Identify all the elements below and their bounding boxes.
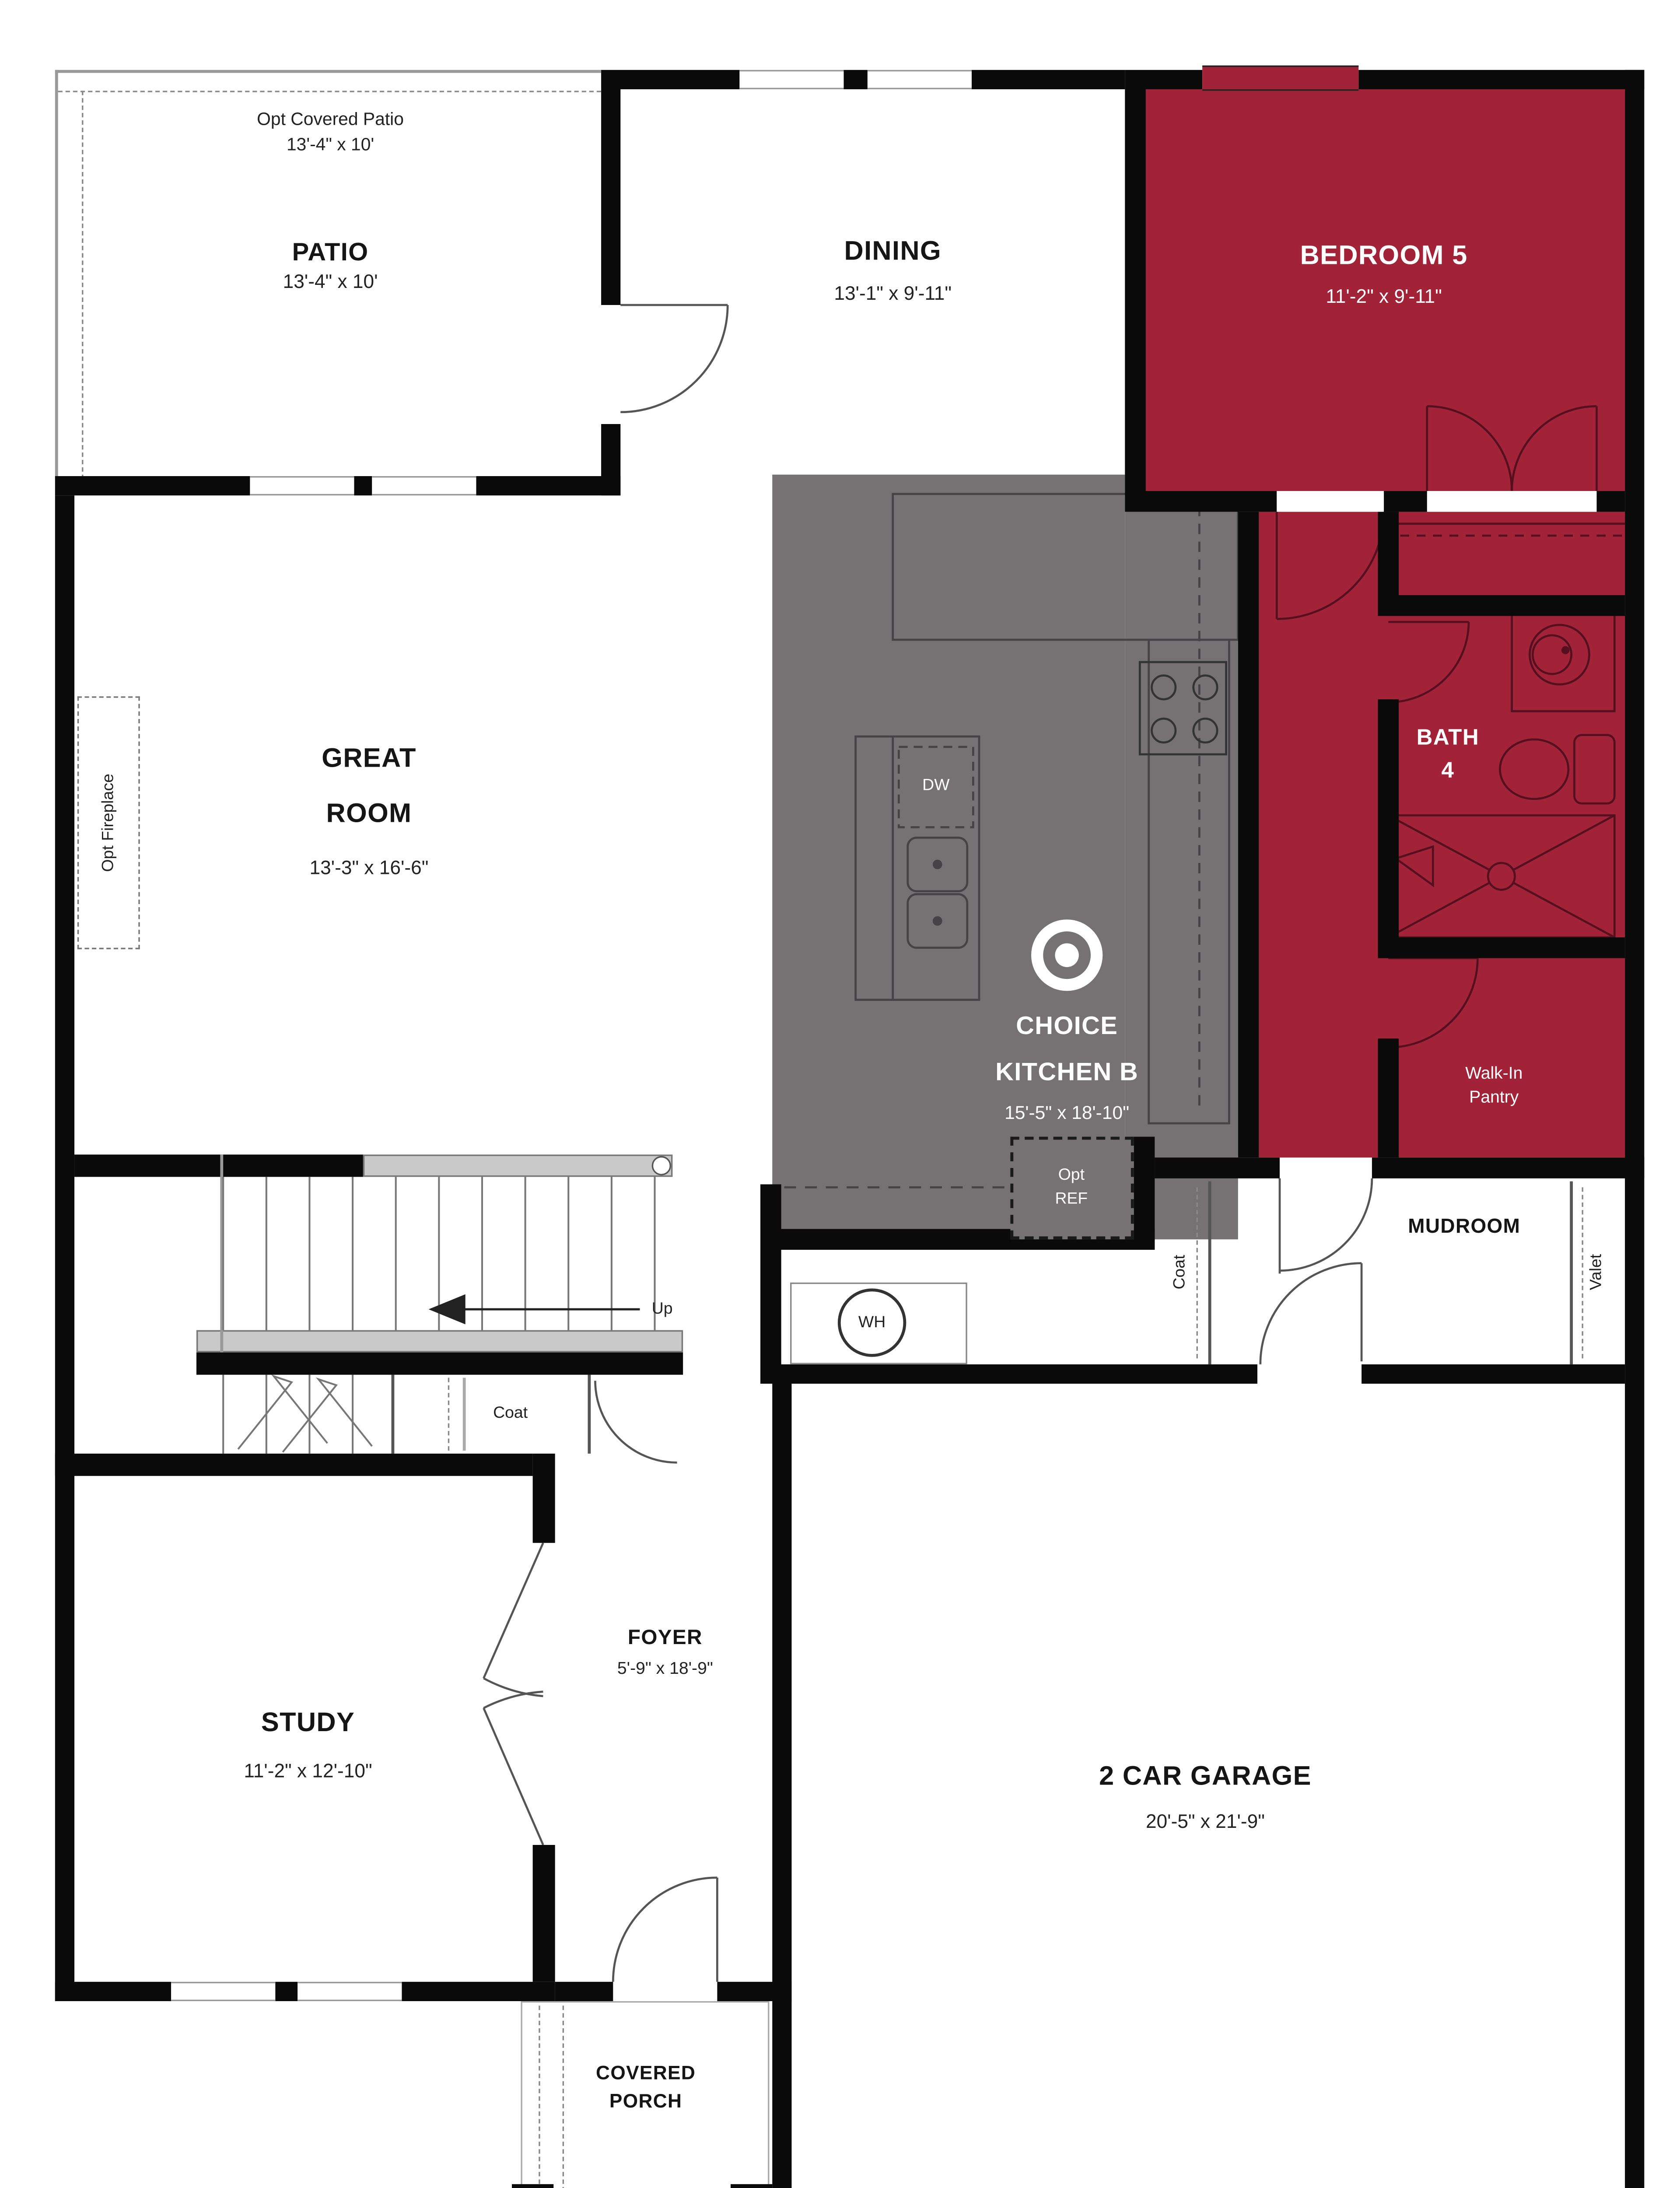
foyer-label: FOYER (628, 1625, 703, 1648)
dining-label: DINING (844, 236, 941, 267)
wall (196, 1353, 683, 1375)
bedroom5-dims: 11'-2" x 9'-11" (1326, 285, 1442, 307)
wall (1378, 595, 1625, 616)
window (372, 476, 476, 495)
wall (1384, 491, 1427, 512)
dining-dims: 13'-1" x 9'-11" (834, 282, 952, 304)
floorplan: Opt Fireplace Opt REF WH Opt Covered Pat… (0, 0, 1680, 2188)
wall (533, 1845, 555, 1982)
bedroom5-window (1202, 66, 1358, 91)
wall (275, 1982, 297, 2001)
stairs-coat-door (595, 1381, 677, 1462)
pantry-label: Walk-In (1465, 1065, 1522, 1083)
wall (55, 1454, 533, 1476)
bedroom5-door (1277, 512, 1384, 619)
opt-fireplace-label: Opt Fireplace (100, 774, 118, 872)
stair-break-line (283, 1379, 372, 1452)
garage-label: 2 CAR GARAGE (1099, 1761, 1312, 1792)
wall (1378, 1038, 1399, 1157)
porch-dashed-line (539, 2006, 540, 2188)
wall (1125, 491, 1277, 512)
bath-sink (1529, 625, 1589, 684)
cooktop (1140, 662, 1226, 754)
water-heater-icon: WH (838, 1288, 906, 1357)
porch-column (512, 2184, 553, 2188)
pantry-label: Pantry (1469, 1089, 1519, 1107)
vanity (1512, 604, 1615, 711)
wall (717, 1982, 791, 2001)
study-double-door (483, 1543, 543, 1845)
opt-covered-patio-dims: 13'-4" x 10' (287, 134, 374, 155)
plan-linework (0, 0, 1680, 2188)
stairs-up-arrow (431, 1296, 640, 1322)
stairs-coat-label: Coat (493, 1405, 528, 1423)
wall (354, 476, 372, 495)
stairs-treads-lower (223, 1375, 372, 1454)
shower (1388, 815, 1614, 937)
window (297, 1982, 402, 2001)
patio-label: PATIO (292, 238, 369, 268)
toilet-tank (1574, 735, 1614, 803)
floorplan-scaler: Opt Fireplace Opt REF WH Opt Covered Pat… (0, 0, 1680, 2188)
kitchen-dims: 15'-5" x 18'-10" (1004, 1102, 1129, 1123)
kitchen-label: KITCHEN B (995, 1058, 1138, 1087)
study-label: STUDY (261, 1708, 355, 1739)
wall (1125, 89, 1146, 491)
wall (55, 495, 74, 2001)
garage-dims: 20'-5" x 21'-9" (1146, 1810, 1265, 1832)
wall (601, 70, 739, 89)
bedroom5-closet-doors (1427, 406, 1597, 491)
patio-dims: 13'-4" x 10' (283, 270, 378, 292)
porch-label: COVERED (596, 2062, 696, 2084)
wall (972, 70, 1125, 89)
wall (55, 1982, 171, 2001)
window (739, 70, 843, 89)
great-room-label: GREAT (322, 743, 416, 774)
kitchen-choice-marker-dot (1055, 943, 1078, 967)
pantry-door (1388, 958, 1477, 1048)
wall (601, 89, 620, 305)
wall (772, 1384, 791, 2188)
wall (1596, 491, 1625, 512)
porch-dashed-line (563, 2006, 564, 2188)
wall (1125, 70, 1202, 89)
window (171, 1982, 275, 2001)
opt-ref-label: Opt (1058, 1167, 1085, 1185)
wall (1625, 70, 1644, 2188)
study-dims: 11'-2" x 12'-10" (244, 1760, 372, 1782)
wall (1378, 512, 1399, 595)
toilet-bowl (1500, 740, 1568, 799)
garage-mudroom-door (1260, 1263, 1361, 1364)
wall (402, 1982, 555, 2001)
great-room-dims: 13'-3" x 16'-6" (310, 856, 429, 879)
wall (1378, 1157, 1645, 1178)
mudroom-label: MUDROOM (1408, 1215, 1520, 1237)
front-door (613, 1878, 717, 1982)
wall (1238, 512, 1259, 1158)
wall (476, 476, 620, 495)
bath4-door (1388, 622, 1469, 702)
bedroom5-label: BEDROOM 5 (1300, 240, 1468, 271)
wall (1358, 70, 1644, 89)
wall (1361, 1364, 1625, 1384)
porch-column (731, 2184, 772, 2188)
wall (772, 1364, 1257, 1384)
patio-dining-door (620, 305, 728, 412)
opt-ref-label: REF (1055, 1190, 1088, 1208)
kitchen-label: CHOICE (1016, 1012, 1118, 1041)
porch-label: PORCH (609, 2090, 682, 2112)
wall (55, 476, 250, 495)
mudroom-coat-label: Coat (1171, 1255, 1189, 1289)
valet-label: Valet (1588, 1254, 1606, 1290)
foyer-dims: 5'-9" x 18'-9" (617, 1660, 713, 1678)
up-label: Up (652, 1301, 673, 1318)
wall (1378, 699, 1399, 958)
dw-label: DW (922, 777, 949, 795)
bath4-label: 4 (1441, 758, 1454, 783)
wh-label: WH (858, 1314, 885, 1332)
hall-mudroom-door (1280, 1178, 1372, 1274)
bath4-label: BATH (1417, 726, 1479, 751)
wall (1155, 1157, 1280, 1178)
great-room-label: ROOM (326, 798, 412, 829)
kitchen-island (856, 736, 979, 1000)
window (868, 70, 972, 89)
wall (760, 1184, 781, 1384)
window (250, 476, 354, 495)
wall (843, 70, 867, 89)
opt-covered-patio-label: Opt Covered Patio (257, 109, 404, 130)
wall (1372, 1157, 1378, 1178)
wall (555, 1982, 613, 2001)
bath4-fixtures (1388, 604, 1614, 937)
wall (1378, 937, 1625, 958)
opt-ref-box (1010, 1137, 1134, 1240)
wall (533, 1454, 555, 1543)
